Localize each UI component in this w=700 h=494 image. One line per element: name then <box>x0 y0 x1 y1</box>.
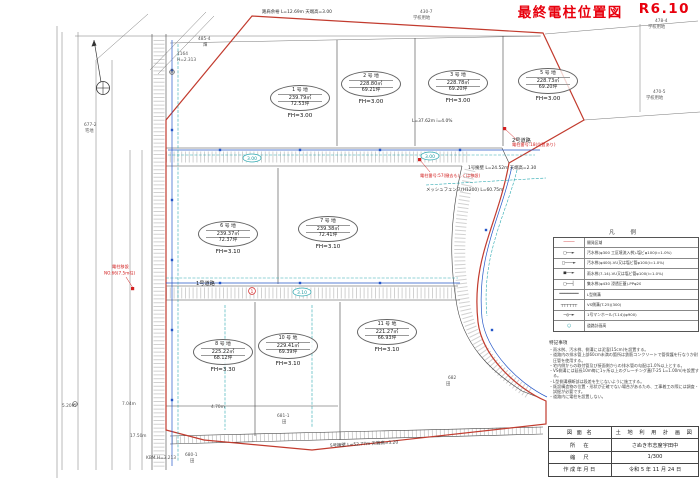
pole-note-relocate: 電柱移設 <box>112 263 130 270</box>
plot-label-7: 7 号 地 239.38㎡ 72.41坪 FH=3.10 <box>298 216 358 250</box>
plot-area: 228.80㎡ <box>349 80 393 89</box>
note-item: ・既設構造物の位置・形状が正確でない場合があるため、工事着工の際には調査・試掘が… <box>549 384 699 395</box>
dim-text: 5.20m <box>62 403 76 409</box>
plot-area: 229.41㎡ <box>266 342 310 351</box>
benchmark-1-elevation: H=2.313 <box>177 57 196 63</box>
plot-fh: FH=3.30 <box>193 367 253 373</box>
plot-area: 228.78㎡ <box>436 79 480 88</box>
legend-symbol-boundary: ──── <box>554 238 585 247</box>
benchmark-1-number: 1164 <box>177 51 188 57</box>
parcel-use: 宅地 <box>85 127 94 134</box>
plot-fh: FH=3.10 <box>198 249 258 255</box>
plot-tsubo: 72.37坪 <box>199 238 257 244</box>
wall1-note: 1号擁壁 L=24.52m 天端高=2.30 <box>468 164 537 171</box>
fence-note: メッシュフェンス(H1200) L=60.75m <box>426 187 503 193</box>
title-block-row: 所 在 さぬき市志度宇田中 <box>549 439 699 451</box>
plot-tsubo: 72.41坪 <box>299 233 357 239</box>
legend-row: ─◎─► 1号マンホール(T-14)(φ900) <box>554 311 698 321</box>
special-notes: 特記事項 ・雨水桝、汚水桝、側溝には泥溜(15cm)を設置する。 ・道路内の排水… <box>549 340 699 400</box>
special-notes-title: 特記事項 <box>549 340 699 346</box>
dim-text: 4.70m <box>211 404 225 410</box>
plot-label-6: 6 号 地 239.37㎡ 72.37坪 FH=3.10 <box>198 221 258 255</box>
pole-note-57: 電柱番号:57(撤去もしくは移設) <box>420 172 481 179</box>
plot-tsubo: 69.20坪 <box>429 87 487 93</box>
plot-area: 221.27㎡ <box>365 328 409 337</box>
legend-symbol-road-level: ◯ <box>554 321 585 330</box>
plot-area: 239.79㎡ <box>278 94 322 103</box>
plot-label-5: 5 号 地 228.73㎡ 69.20坪 FH=3.00 <box>518 68 578 102</box>
parcel-use: 学校用地 <box>648 23 666 30</box>
legend-row: ■──► 雨水桝(7-14)-VU又は塩ビ管φ100(i=1.0%) <box>554 269 698 279</box>
parcel-no: 470-5 <box>653 89 666 95</box>
parcel-use: 畑 <box>203 41 208 48</box>
legend-symbol-rain-basin: ■──► <box>554 269 585 278</box>
title-block-value: 土 地 利 用 計 画 図 <box>612 427 699 439</box>
plot-tsubo: 69.21坪 <box>342 88 400 94</box>
title-block-label: 所 在 <box>549 439 612 451</box>
title-block-value: さぬき市志度宇田中 <box>612 439 699 451</box>
plot-fh: FH=3.10 <box>258 361 318 367</box>
parcel-no: 478-4 <box>655 18 668 24</box>
legend-symbol-catch-basin: □──┤ <box>554 280 585 289</box>
title-block-row: 作成年月日 令和 5 年 11 月 24 日 <box>549 464 699 476</box>
road-1-label: 1号道路 <box>196 279 216 287</box>
plot-fh: FH=3.00 <box>428 98 488 104</box>
plot-fh: FH=3.10 <box>357 347 417 353</box>
parcel-use: 学校用地 <box>646 94 664 101</box>
legend-symbol-manhole: ─◎─► <box>554 311 585 320</box>
north-arrow-icon <box>92 40 110 95</box>
note-item: ・道路内に電柱を設置しない。 <box>549 394 699 399</box>
plot-area: 228.73㎡ <box>526 77 570 86</box>
note-item: ・VS側溝には延長10m毎に1ヶ所以上のグレーチング蓋(T-25 L=1.00m… <box>549 368 699 379</box>
legend-symbol-sewer-basin-300: □──► <box>554 248 585 257</box>
parcel-no: 680-1 <box>185 452 198 458</box>
legend-row: □───► 汚水桝(φ400)-VU又は塩ビ管φ100(i=1.0%) <box>554 259 698 269</box>
legend-symbol-vs-gutter: ┬┬┬┬┬┬ <box>554 300 585 309</box>
legend-row: ═══════ L型側溝 <box>554 290 698 300</box>
legend-row: ◯ 道路計画高 <box>554 321 698 330</box>
shoulder-note: 路肩余裕 L=12.69m 天端高=3.00 <box>262 8 332 15</box>
dim-text: 7.04m <box>122 401 136 407</box>
plot-tsubo: 69.20坪 <box>519 85 577 91</box>
legend-symbol-l-gutter: ═══════ <box>554 290 585 299</box>
drawing-sheet: 最終電柱位置図 R6.10 <box>0 0 700 494</box>
road-level-2: 3.00 <box>425 154 435 160</box>
parcel-no: 485-4 <box>198 36 211 42</box>
parcel-no: 682 <box>448 375 456 381</box>
title-block-label: 図 面 名 <box>549 427 612 439</box>
parcel-no: 430-7 <box>420 9 433 15</box>
legend-row: □──► 汚水桝(φ300 工区境流入桝)-塩ビφ100(i=1.0%) <box>554 248 698 258</box>
plot-fh: FH=3.00 <box>341 99 401 105</box>
plot-tsubo: 68.12坪 <box>194 356 252 362</box>
legend-title: 凡 例 <box>553 228 699 236</box>
legend-row: ──── 開発区域 <box>554 238 698 248</box>
parcel-use: 田 <box>282 419 286 425</box>
plot-label-2: 2 号 地 228.80㎡ 69.21坪 FH=3.00 <box>341 71 401 105</box>
parcel-no: 677-2 <box>84 122 97 128</box>
pole-number-badge: 1 <box>251 289 254 294</box>
plot-fh: FH=3.00 <box>270 113 330 119</box>
title-block-label: 縮 尺 <box>549 451 612 463</box>
plot-label-11: 11 号 地 221.27㎡ 66.93坪 FH=3.10 <box>357 319 417 353</box>
plot-area: 239.37㎡ <box>206 230 250 239</box>
parcel-use: 田 <box>446 381 450 387</box>
plot-tsubo: 69.39坪 <box>259 350 317 356</box>
parcel-no: 681-1 <box>277 413 290 419</box>
legend: 凡 例 ──── 開発区域 □──► 汚水桝(φ300 工区境流入桝)-塩ビφ1… <box>553 228 699 332</box>
plot-tsubo: 72.53坪 <box>271 102 329 108</box>
note-item: ・道路内の排水管上部60cm未満の箇所は鉄筋コンクリートで管保護を行なうか耐圧管… <box>549 352 699 363</box>
plot-area: 225.22㎡ <box>201 348 245 357</box>
title-block: 図 面 名 土 地 利 用 計 画 図 所 在 さぬき市志度宇田中 縮 尺 1/… <box>548 426 699 477</box>
plot-label-1: 1 号 地 239.79㎡ 72.53坪 FH=3.00 <box>270 85 330 119</box>
wall5-note: 5号擁壁 L=52.77m 天端高=3.20 <box>330 438 399 449</box>
plot-area: 239.38㎡ <box>306 225 350 234</box>
title-block-label: 作成年月日 <box>549 464 612 476</box>
road-2-label: 2号道路 <box>512 136 532 144</box>
plot-label-3: 3 号 地 228.78㎡ 69.20坪 FH=3.00 <box>428 70 488 104</box>
benchmark-2: KBM H=3.213 <box>146 455 176 461</box>
legend-row: □──┤ 集水桝(φ430 浸透圧蓋)-PPφ20 <box>554 280 698 290</box>
title-block-row: 図 面 名 土 地 利 用 計 画 図 <box>549 427 699 439</box>
parcel-use: 田 <box>190 458 194 464</box>
title-block-value: 令和 5 年 11 月 24 日 <box>612 464 699 476</box>
legend-symbol-sewer-basin-400: □───► <box>554 259 585 268</box>
plot-tsubo: 66.93坪 <box>358 336 416 342</box>
plot-fh: FH=3.10 <box>298 244 358 250</box>
plot-label-8: 8 号 地 225.22㎡ 68.12坪 FH=3.30 <box>193 339 253 373</box>
plot-fh: FH=3.00 <box>518 96 578 102</box>
title-block-row: 縮 尺 1/300 <box>549 451 699 463</box>
legend-row: ┬┬┬┬┬┬ VS側溝(T-25)(300) <box>554 300 698 310</box>
road-level-1: 3.00 <box>247 156 257 162</box>
plot-label-10: 10 号 地 229.41㎡ 69.39坪 FH=3.10 <box>258 333 318 367</box>
sewer-grade-note: L=37.62m i=4.0% <box>412 118 452 124</box>
parcel-use: 学校用地 <box>413 14 431 21</box>
pole-note-relocate-no: NO.66(7.5m柱) <box>104 270 135 277</box>
dim-text: 17.50m <box>130 433 147 439</box>
road-level-3: 3.10 <box>297 290 307 296</box>
title-block-value: 1/300 <box>612 451 699 463</box>
